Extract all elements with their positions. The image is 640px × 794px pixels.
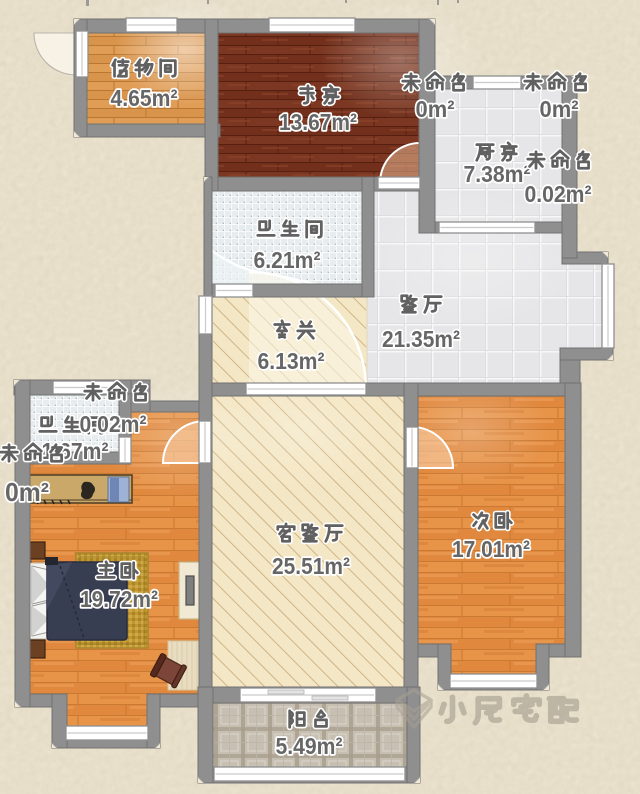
svg-text:6.21m²: 6.21m² bbox=[254, 247, 321, 273]
svg-text:0.02m²: 0.02m² bbox=[525, 181, 592, 207]
svg-text:13.67m²: 13.67m² bbox=[279, 109, 357, 135]
svg-text:0m²: 0m² bbox=[540, 96, 579, 122]
svg-text:21.35m²: 21.35m² bbox=[382, 326, 460, 352]
svg-text:19.72m²: 19.72m² bbox=[80, 586, 158, 612]
svg-text:25.51m²: 25.51m² bbox=[272, 553, 350, 579]
svg-text:0m²: 0m² bbox=[416, 96, 455, 122]
svg-text:17.01m²: 17.01m² bbox=[452, 536, 530, 562]
svg-text:0m²: 0m² bbox=[5, 477, 49, 507]
svg-text:6.13m²: 6.13m² bbox=[258, 348, 325, 374]
svg-text:0.02m²: 0.02m² bbox=[80, 411, 147, 437]
svg-text:4.65m²: 4.65m² bbox=[111, 85, 178, 111]
svg-text:7.38m²: 7.38m² bbox=[464, 161, 531, 187]
svg-text:5.49m²: 5.49m² bbox=[276, 733, 343, 759]
